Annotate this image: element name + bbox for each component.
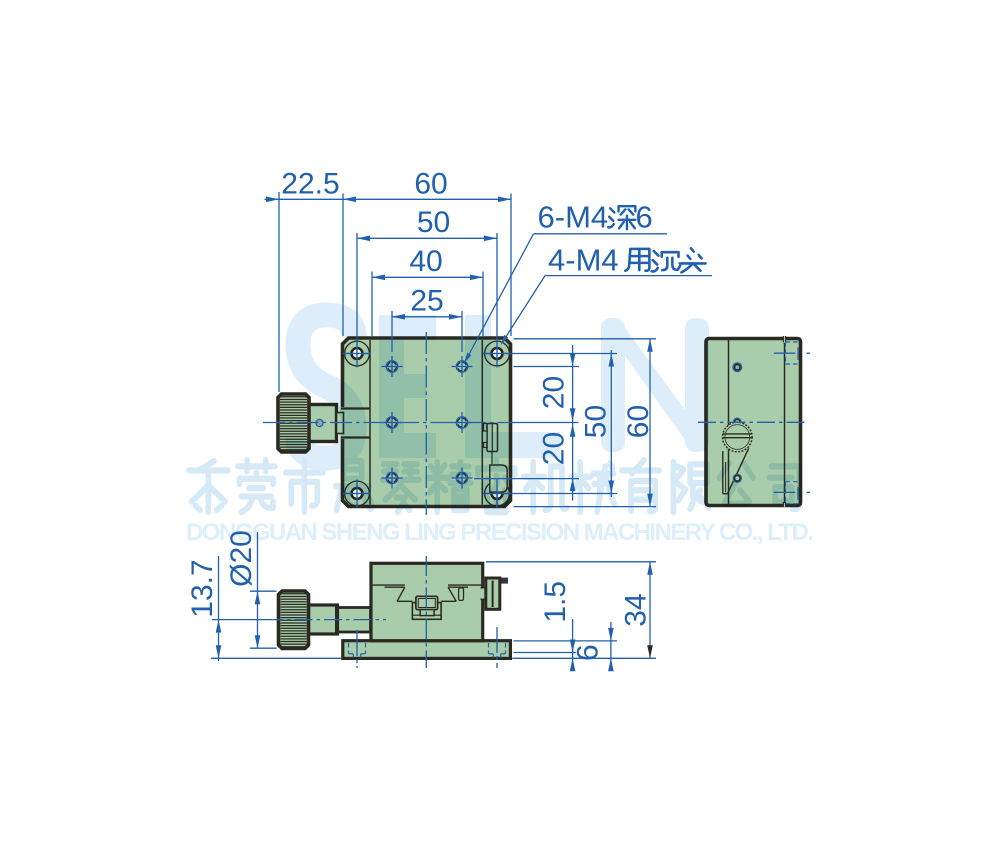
svg-text:20: 20 [538,376,571,409]
svg-text:50: 50 [417,206,450,239]
svg-text:20: 20 [538,432,571,465]
svg-text:1.5: 1.5 [539,581,572,623]
svg-text:6: 6 [636,200,653,235]
svg-text:25: 25 [410,285,443,318]
svg-text:40: 40 [409,245,442,278]
svg-text:6: 6 [572,644,605,661]
svg-text:13.7: 13.7 [186,559,219,617]
svg-text:Ø20: Ø20 [225,530,258,587]
svg-text:4-M4: 4-M4 [548,243,619,278]
svg-text:6-M4: 6-M4 [538,200,609,235]
svg-text:DONGGUAN SHENG LING PRECISION: DONGGUAN SHENG LING PRECISION MACHINERY … [186,519,814,546]
svg-text:50: 50 [580,405,613,438]
svg-text:60: 60 [622,405,655,438]
svg-text:22.5: 22.5 [281,167,339,200]
svg-text:60: 60 [414,167,447,200]
svg-text:34: 34 [620,593,653,626]
